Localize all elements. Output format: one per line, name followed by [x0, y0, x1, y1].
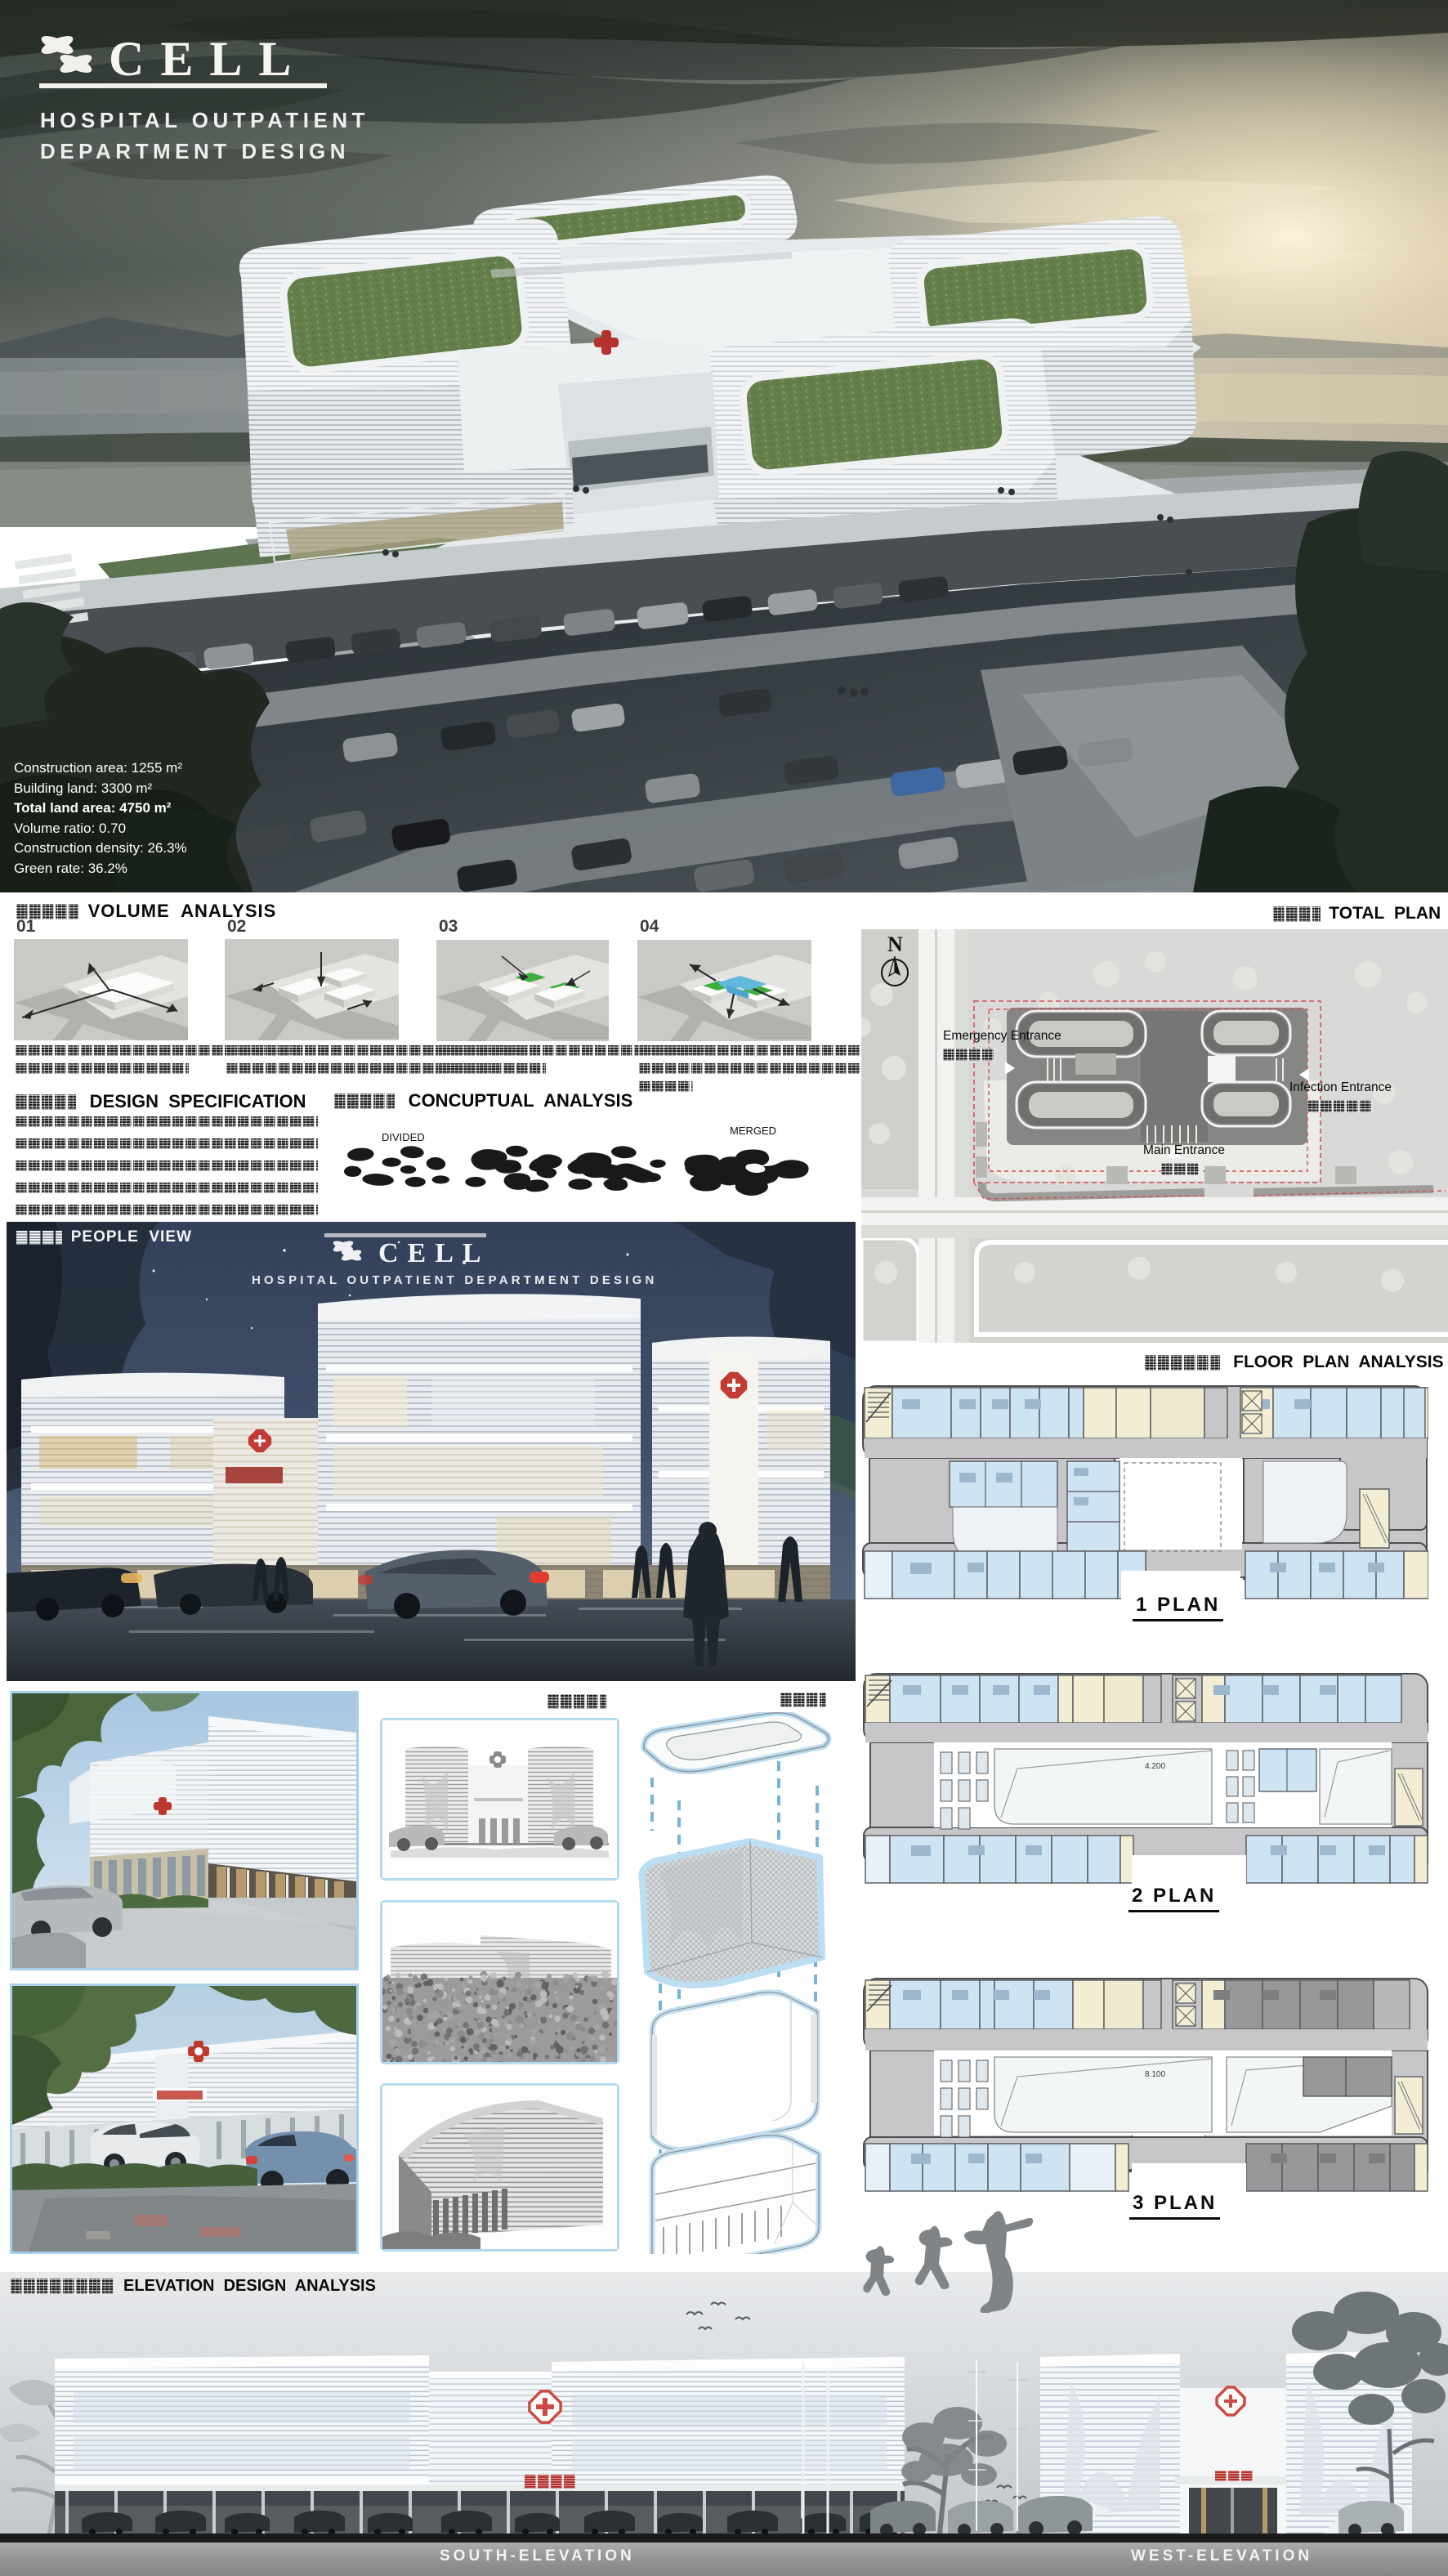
svg-text:4.200: 4.200: [1145, 1762, 1165, 1771]
svg-text:CELL: CELL: [378, 1238, 490, 1268]
svg-text:SOUTH-ELEVATION: SOUTH-ELEVATION: [440, 2547, 635, 2565]
svg-text:WEST-ELEVATION: WEST-ELEVATION: [1131, 2547, 1312, 2565]
svg-text:DEPARTMENT DESIGN: DEPARTMENT DESIGN: [40, 139, 350, 163]
svg-text:HOSPITAL OUTPATIENT DEPARTMENT: HOSPITAL OUTPATIENT DEPARTMENT DESIGN: [252, 1273, 658, 1287]
svg-text:HOSPITAL OUTPATIENT: HOSPITAL OUTPATIENT: [40, 108, 369, 132]
svg-text:8.100: 8.100: [1145, 2070, 1165, 2079]
svg-text:CELL: CELL: [109, 33, 307, 86]
svg-text:N: N: [887, 932, 903, 956]
